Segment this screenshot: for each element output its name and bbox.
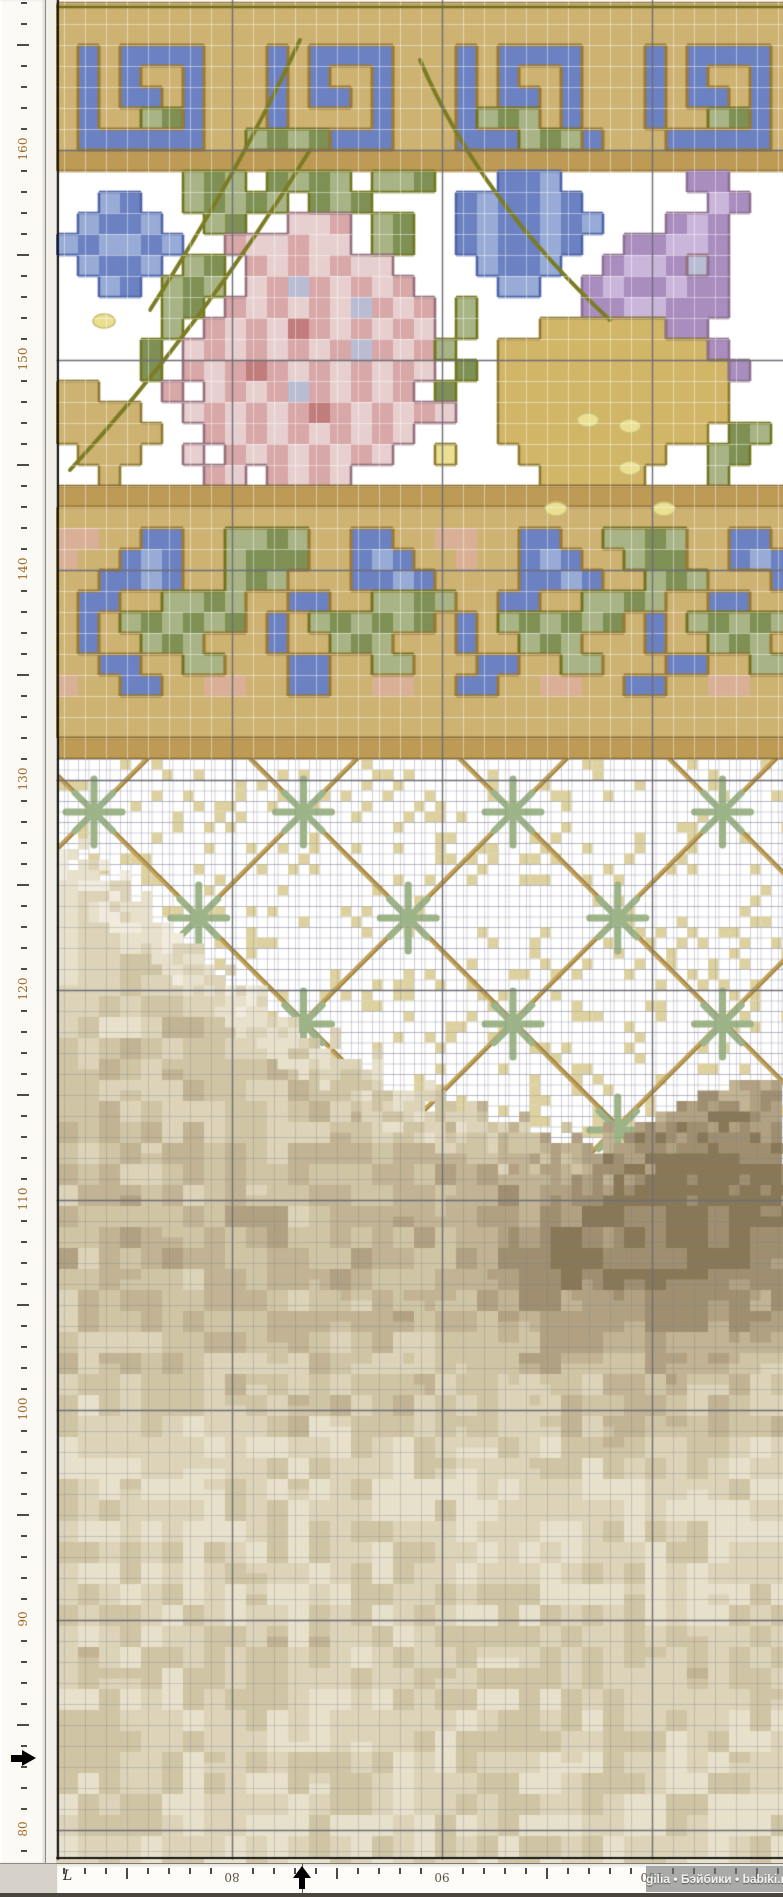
ruler-tick	[21, 1640, 27, 1642]
ruler-tick	[567, 1868, 569, 1874]
ruler-tick	[546, 1868, 548, 1879]
ruler-tick	[21, 737, 27, 739]
ruler-tick	[21, 1661, 27, 1663]
ruler-tick	[399, 1868, 401, 1874]
vertical-ruler-label: 80	[16, 1814, 30, 1844]
ruler-tick	[21, 401, 27, 403]
ruler-tick	[21, 716, 27, 718]
ruler-tick	[21, 632, 27, 634]
ruler-tick	[21, 1493, 27, 1495]
ruler-tick	[21, 611, 27, 613]
ruler-tick	[147, 1868, 149, 1874]
ruler-tick	[21, 653, 27, 655]
ruler-tick	[21, 275, 27, 277]
ruler-tick	[21, 947, 27, 949]
ruler-tick	[21, 128, 27, 130]
vertical-ruler-label: 130	[16, 764, 30, 794]
ruler-tick	[315, 1868, 317, 1874]
ruler-tick	[21, 23, 27, 25]
ruler-tick	[252, 1868, 254, 1874]
ruler-tick	[21, 1220, 27, 1222]
ruler-tick	[21, 1283, 27, 1285]
ruler-tick	[21, 1052, 27, 1054]
ruler-tick	[21, 527, 27, 529]
ruler-tick	[21, 1598, 27, 1600]
ruler-tick	[21, 821, 27, 823]
ruler-tick	[378, 1868, 380, 1874]
ruler-tick	[17, 1724, 29, 1726]
ruler-tick	[21, 1241, 27, 1243]
ruler-tick	[21, 863, 27, 865]
ruler-tick	[21, 233, 27, 235]
ruler-tick	[21, 380, 27, 382]
ruler-tick	[21, 1577, 27, 1579]
ruler-tick	[21, 1787, 27, 1789]
vertical-ruler-label: 150	[16, 344, 30, 374]
horizontal-ruler-position-arrow-icon	[293, 1866, 311, 1890]
ruler-tick	[21, 1556, 27, 1558]
ruler-tick	[21, 1703, 27, 1705]
ruler-tick	[21, 842, 27, 844]
ruler-tick	[630, 1868, 632, 1874]
arrow-tail	[11, 1755, 22, 1762]
ruler-tick	[357, 1868, 359, 1874]
ruler-tick	[21, 1808, 27, 1810]
ruler-tick	[336, 1868, 338, 1879]
ruler-tick	[21, 422, 27, 424]
ruler-tick	[21, 968, 27, 970]
ruler-tick	[21, 926, 27, 928]
stitch-chart-canvas	[0, 0, 783, 1897]
ruler-tick	[273, 1868, 275, 1874]
ruler-tick	[84, 1868, 86, 1874]
ruler-tick	[17, 1304, 29, 1306]
vertical-ruler-position-arrow-icon	[11, 1750, 37, 1767]
ruler-tick	[189, 1868, 191, 1874]
ruler-tick	[462, 1868, 464, 1874]
ruler-tick	[21, 1115, 27, 1117]
ruler-tick	[21, 800, 27, 802]
ruler-tick	[17, 884, 29, 886]
ruler-tick	[21, 548, 27, 550]
ruler-tick	[21, 506, 27, 508]
ruler-tick	[21, 191, 27, 193]
ruler-tick	[21, 296, 27, 298]
ruler-tick	[21, 170, 27, 172]
ruler-tick	[21, 1535, 27, 1537]
ruler-tick	[21, 2, 27, 4]
bottom-border-strip	[0, 1893, 783, 1897]
ruler-tick	[504, 1868, 506, 1874]
vertical-ruler: 1601501401301201101009080	[0, 0, 46, 1863]
vertical-ruler-gap	[46, 0, 56, 1863]
ruler-tick	[21, 695, 27, 697]
ruler-tick	[17, 44, 29, 46]
ruler-tick	[21, 905, 27, 907]
ruler-tick	[126, 1868, 128, 1879]
ruler-tick	[17, 674, 29, 676]
ruler-tick	[168, 1868, 170, 1874]
vertical-ruler-label: 120	[16, 974, 30, 1004]
ruler-tick	[21, 212, 27, 214]
ruler-tick	[21, 107, 27, 109]
ruler-tick	[21, 1325, 27, 1327]
ruler-tick	[210, 1868, 212, 1874]
ruler-tick	[17, 464, 29, 466]
ruler-tick	[21, 1850, 27, 1852]
ruler-tick	[420, 1868, 422, 1874]
ruler-tick	[21, 86, 27, 88]
ruler-tick	[21, 758, 27, 760]
ruler-tick	[21, 65, 27, 67]
ruler-tick	[21, 1367, 27, 1369]
ruler-tick	[588, 1868, 590, 1874]
ruler-tick	[21, 1388, 27, 1390]
ruler-tick	[17, 254, 29, 256]
ruler-tick	[21, 1682, 27, 1684]
horizontal-ruler-label: 80	[215, 1870, 249, 1884]
ruler-tick	[21, 1031, 27, 1033]
ruler-tick	[21, 1745, 27, 1747]
ruler-tick	[21, 1157, 27, 1159]
ruler-tick	[21, 1472, 27, 1474]
ruler-tick	[63, 1868, 65, 1874]
ruler-tick	[21, 1451, 27, 1453]
vertical-ruler-label: 140	[16, 554, 30, 584]
ruler-tick	[17, 1514, 29, 1516]
ruler-tick	[21, 1430, 27, 1432]
ruler-tick	[21, 317, 27, 319]
ruler-tick	[21, 590, 27, 592]
ruler-tick	[21, 1136, 27, 1138]
ruler-tick	[609, 1868, 611, 1874]
ruler-tick	[21, 443, 27, 445]
arrow-tail	[299, 1878, 305, 1889]
arrow-head	[22, 1750, 36, 1766]
pattern-viewport: 1601501401301201101009080 L 8090100 gili…	[0, 0, 783, 1897]
ruler-tick	[21, 1010, 27, 1012]
ruler-corner	[0, 1863, 57, 1897]
ruler-tick	[21, 338, 27, 340]
watermark: gilia • Бэйбики • babiki.ru	[646, 1866, 783, 1892]
ruler-tick	[483, 1868, 485, 1874]
horizontal-ruler-label: 90	[425, 1870, 459, 1884]
vertical-ruler-label: 160	[16, 134, 30, 164]
ruler-tick	[17, 1094, 29, 1096]
arrow-head	[293, 1866, 311, 1878]
ruler-tick	[105, 1868, 107, 1874]
ruler-tick	[21, 1178, 27, 1180]
vertical-ruler-label: 100	[16, 1394, 30, 1424]
vertical-ruler-label: 90	[16, 1604, 30, 1634]
ruler-tick	[525, 1868, 527, 1874]
ruler-tick	[21, 1262, 27, 1264]
ruler-tick	[21, 485, 27, 487]
ruler-tick	[21, 1073, 27, 1075]
ruler-tick	[21, 1346, 27, 1348]
vertical-ruler-label: 110	[16, 1184, 30, 1214]
